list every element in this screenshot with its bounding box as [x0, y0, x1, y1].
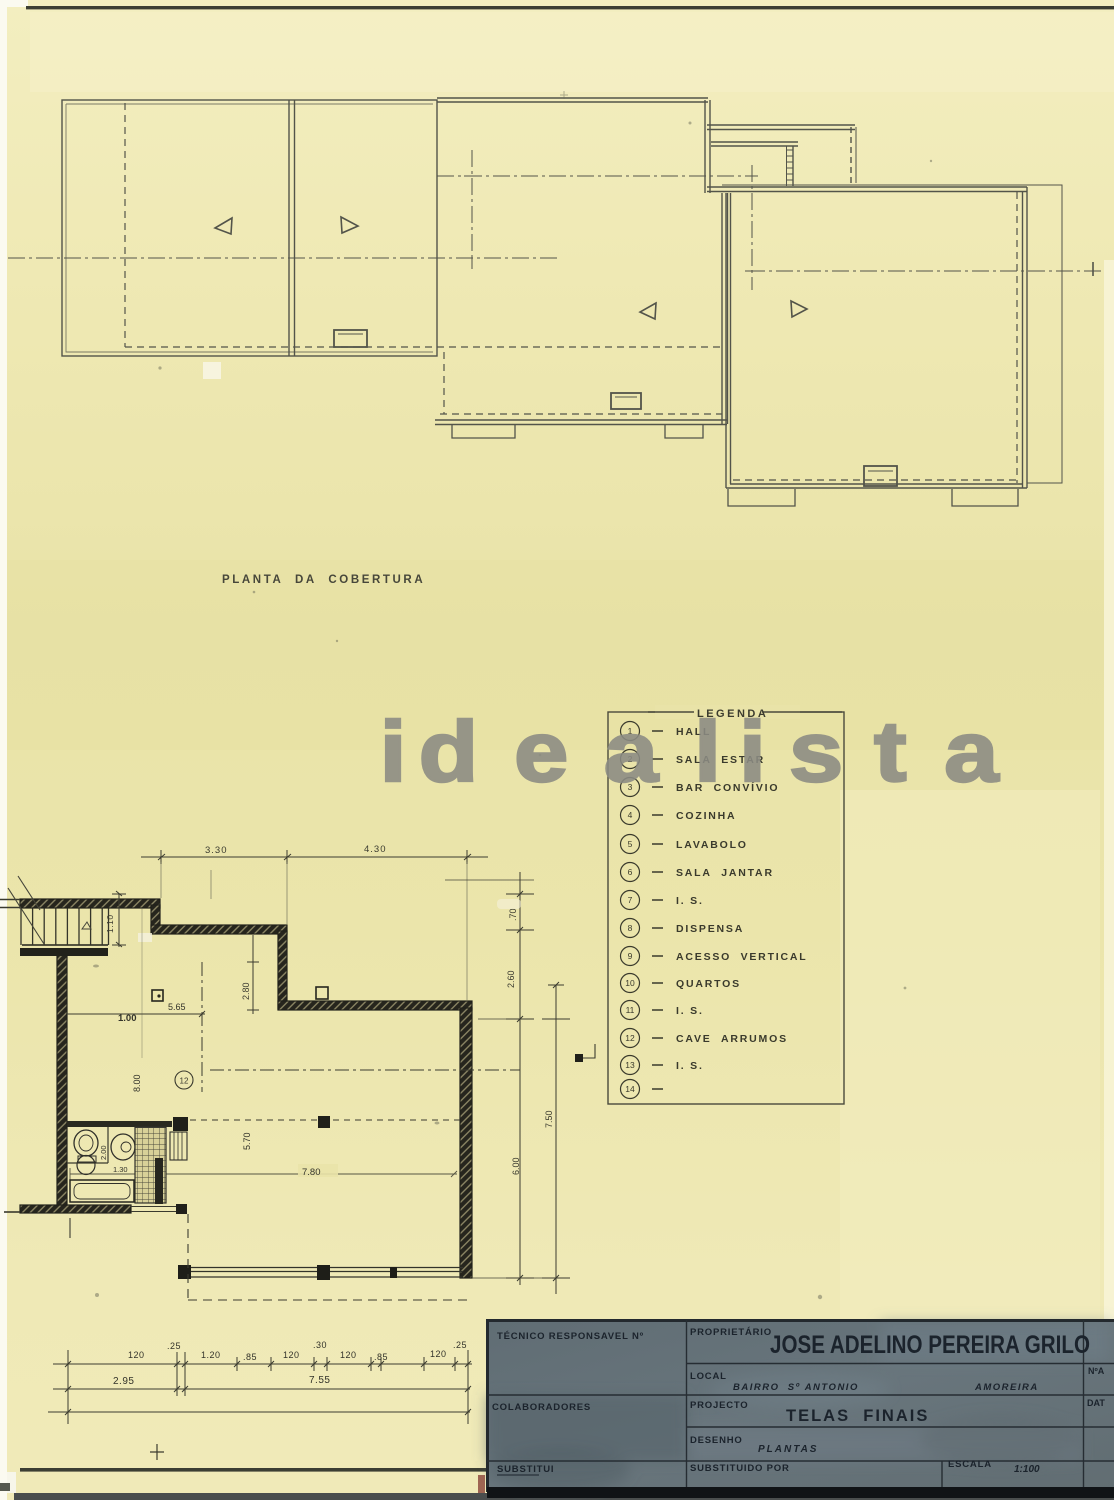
- svg-text:14: 14: [625, 1084, 635, 1094]
- svg-text:PLANTA DA COBERTURA: PLANTA DA COBERTURA: [222, 574, 425, 586]
- svg-text:7: 7: [628, 895, 633, 905]
- svg-text:3.30: 3.30: [205, 845, 228, 856]
- svg-text:TELAS FINAIS: TELAS FINAIS: [786, 1407, 929, 1425]
- svg-text:DAT: DAT: [1087, 1398, 1105, 1408]
- svg-text:JOSE ADELINO PEREIRA GRILO: JOSE ADELINO PEREIRA GRILO: [770, 1331, 1090, 1359]
- svg-text:NºA: NºA: [1088, 1366, 1105, 1376]
- svg-text:12: 12: [180, 1077, 189, 1086]
- svg-text:SUBSTITUI: SUBSTITUI: [497, 1464, 554, 1475]
- svg-text:1:100: 1:100: [1014, 1464, 1040, 1475]
- svg-text:PROPRIETÁRIO: PROPRIETÁRIO: [690, 1327, 772, 1338]
- svg-text:COLABORADORES: COLABORADORES: [492, 1402, 591, 1413]
- svg-text:1.20: 1.20: [201, 1350, 221, 1360]
- svg-text:5.70: 5.70: [242, 1132, 252, 1150]
- svg-text:CAVE ARRUMOS: CAVE ARRUMOS: [676, 1033, 788, 1045]
- svg-text:1.10: 1.10: [105, 914, 115, 933]
- svg-text:PROJECTO: PROJECTO: [690, 1400, 749, 1411]
- svg-text:COZINHA: COZINHA: [676, 810, 736, 822]
- svg-text:TÉCNICO RESPONSAVEL Nº: TÉCNICO RESPONSAVEL Nº: [497, 1331, 644, 1342]
- svg-text:ESCALA: ESCALA: [948, 1459, 992, 1470]
- svg-text:9: 9: [628, 951, 633, 961]
- svg-text:7.50: 7.50: [544, 1110, 554, 1128]
- svg-text:7.55: 7.55: [309, 1375, 330, 1386]
- svg-text:5.65: 5.65: [168, 1002, 186, 1012]
- svg-text:QUARTOS: QUARTOS: [676, 978, 741, 990]
- svg-text:DESENHO: DESENHO: [690, 1435, 743, 1446]
- svg-text:4: 4: [628, 810, 633, 820]
- svg-text:8.00: 8.00: [132, 1074, 142, 1092]
- svg-text:ACESSO VERTICAL: ACESSO VERTICAL: [676, 951, 807, 963]
- svg-text:2.00: 2.00: [99, 1145, 108, 1160]
- svg-text:120: 120: [283, 1350, 300, 1360]
- svg-text:AMOREIRA: AMOREIRA: [974, 1382, 1039, 1393]
- svg-text:.70: .70: [508, 908, 518, 921]
- svg-text:DISPENSA: DISPENSA: [676, 923, 744, 935]
- svg-text:.25: .25: [167, 1341, 181, 1351]
- svg-text:13: 13: [625, 1060, 635, 1070]
- svg-text:SUBSTITUIDO POR: SUBSTITUIDO POR: [690, 1463, 790, 1474]
- svg-text:LAVABOLO: LAVABOLO: [676, 839, 748, 851]
- svg-text:5: 5: [628, 839, 633, 849]
- svg-text:4.30: 4.30: [364, 844, 387, 855]
- svg-text:7.80: 7.80: [302, 1167, 321, 1178]
- svg-text:8: 8: [628, 923, 633, 933]
- svg-text:.25: .25: [453, 1340, 467, 1350]
- svg-text:120: 120: [430, 1349, 447, 1359]
- svg-text:1.30: 1.30: [113, 1165, 128, 1174]
- svg-text:2.95: 2.95: [113, 1376, 134, 1387]
- svg-text:.85: .85: [243, 1352, 257, 1362]
- svg-text:SALA JANTAR: SALA JANTAR: [676, 867, 774, 879]
- svg-text:120: 120: [128, 1350, 145, 1360]
- svg-text:I. S.: I. S.: [676, 895, 704, 907]
- svg-text:PLANTAS: PLANTAS: [758, 1444, 818, 1455]
- svg-text:BAIRRO Sº ANTONIO: BAIRRO Sº ANTONIO: [733, 1382, 859, 1393]
- svg-text:12: 12: [625, 1033, 635, 1043]
- svg-text:1.00: 1.00: [118, 1013, 137, 1024]
- svg-text:2.60: 2.60: [506, 970, 516, 988]
- svg-text:I. S.: I. S.: [676, 1060, 704, 1072]
- svg-text:11: 11: [626, 1005, 635, 1015]
- svg-text:120: 120: [340, 1350, 357, 1360]
- svg-text:.85: .85: [374, 1352, 388, 1362]
- svg-text:I. S.: I. S.: [676, 1005, 704, 1017]
- svg-text:LOCAL: LOCAL: [690, 1371, 727, 1382]
- svg-text:2.80: 2.80: [241, 982, 251, 1000]
- svg-text:10: 10: [625, 978, 635, 988]
- svg-text:.30: .30: [313, 1340, 327, 1350]
- svg-text:6.00: 6.00: [511, 1157, 521, 1175]
- svg-text:6: 6: [628, 867, 633, 877]
